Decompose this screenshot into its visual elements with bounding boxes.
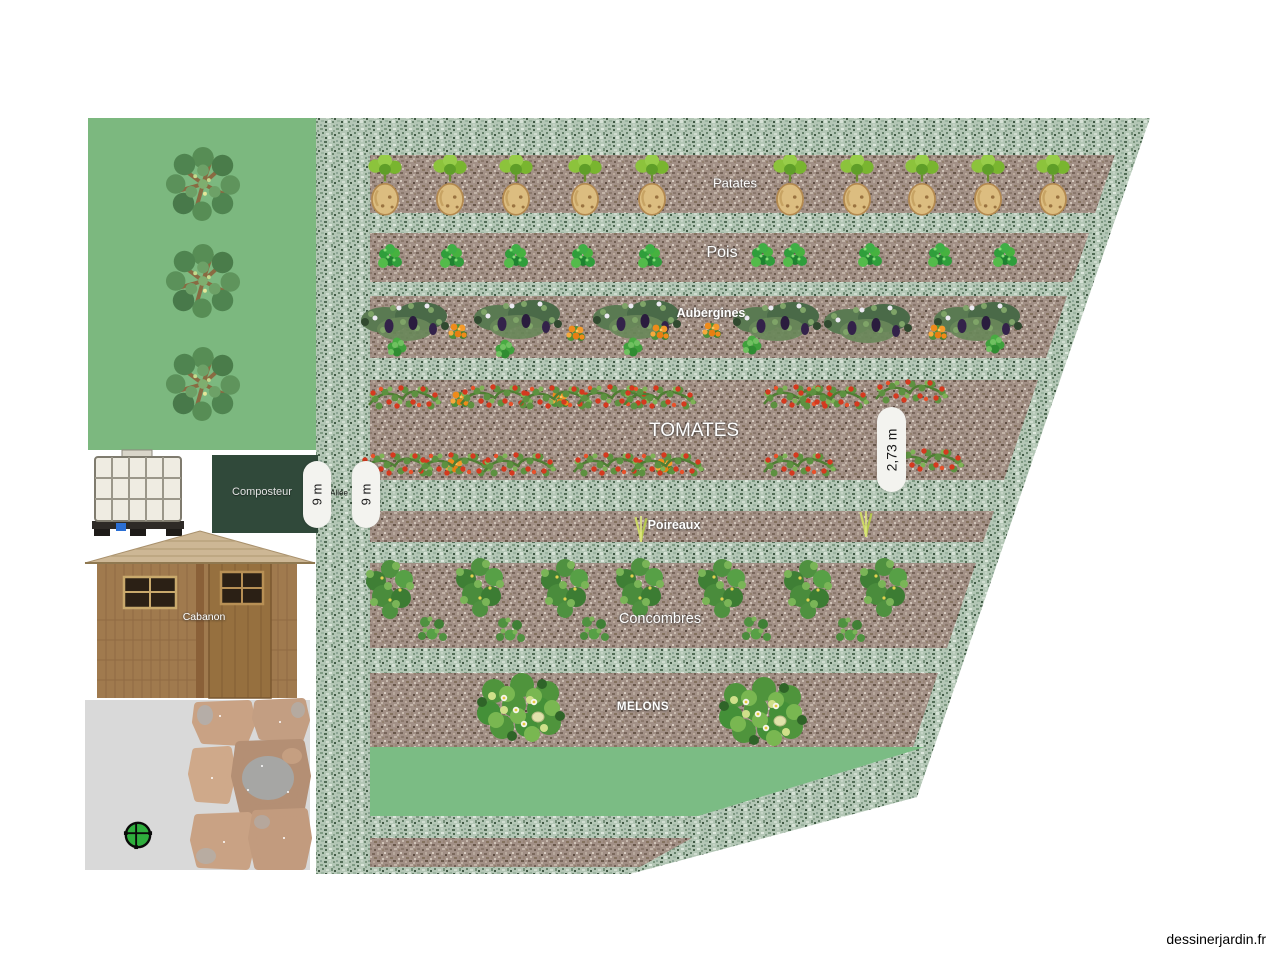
marigold-icon[interactable]	[702, 323, 721, 338]
terrace[interactable]	[85, 700, 310, 870]
marigold-icon[interactable]	[448, 324, 467, 339]
shed-label: Cabanon	[183, 611, 226, 623]
measurement-text: 2,73 m	[884, 428, 900, 471]
row-label-aubergines: Aubergines	[677, 306, 746, 320]
tree-icon[interactable]	[166, 347, 240, 421]
marigold-icon[interactable]	[566, 326, 585, 341]
row-label-patates: Patates	[713, 176, 757, 191]
marigold-icon[interactable]	[650, 325, 669, 340]
tree-icon[interactable]	[166, 147, 240, 221]
measurement-text: 9 m	[358, 484, 373, 506]
row-label-concombres: Concombres	[619, 611, 701, 627]
row-label-pois: Pois	[706, 244, 737, 262]
row-label-melons: MELONS	[617, 701, 669, 713]
row-label-tomates: TOMATES	[649, 420, 739, 442]
measurement-pill-path: 9 m	[352, 461, 380, 528]
measurement-pill-left: 9 m	[303, 461, 331, 528]
site-watermark: dessinerjardin.fr	[1166, 931, 1266, 947]
marigold-icon[interactable]	[928, 325, 947, 340]
plan-svg	[0, 0, 1280, 960]
measurement-pill-row-height: 2,73 m	[877, 407, 906, 492]
measurement-text: 9 m	[309, 484, 324, 506]
garden-plan-canvas: Patates Pois Aubergines TOMATES Poireaux…	[0, 0, 1280, 960]
composter-label: Composteur	[232, 486, 292, 498]
tree-icon[interactable]	[166, 244, 240, 318]
path-label: Allée	[330, 489, 348, 498]
row-label-poireaux: Poireaux	[648, 518, 701, 532]
bed-bottom-strip[interactable]	[370, 838, 692, 867]
water-tank[interactable]	[92, 450, 184, 536]
